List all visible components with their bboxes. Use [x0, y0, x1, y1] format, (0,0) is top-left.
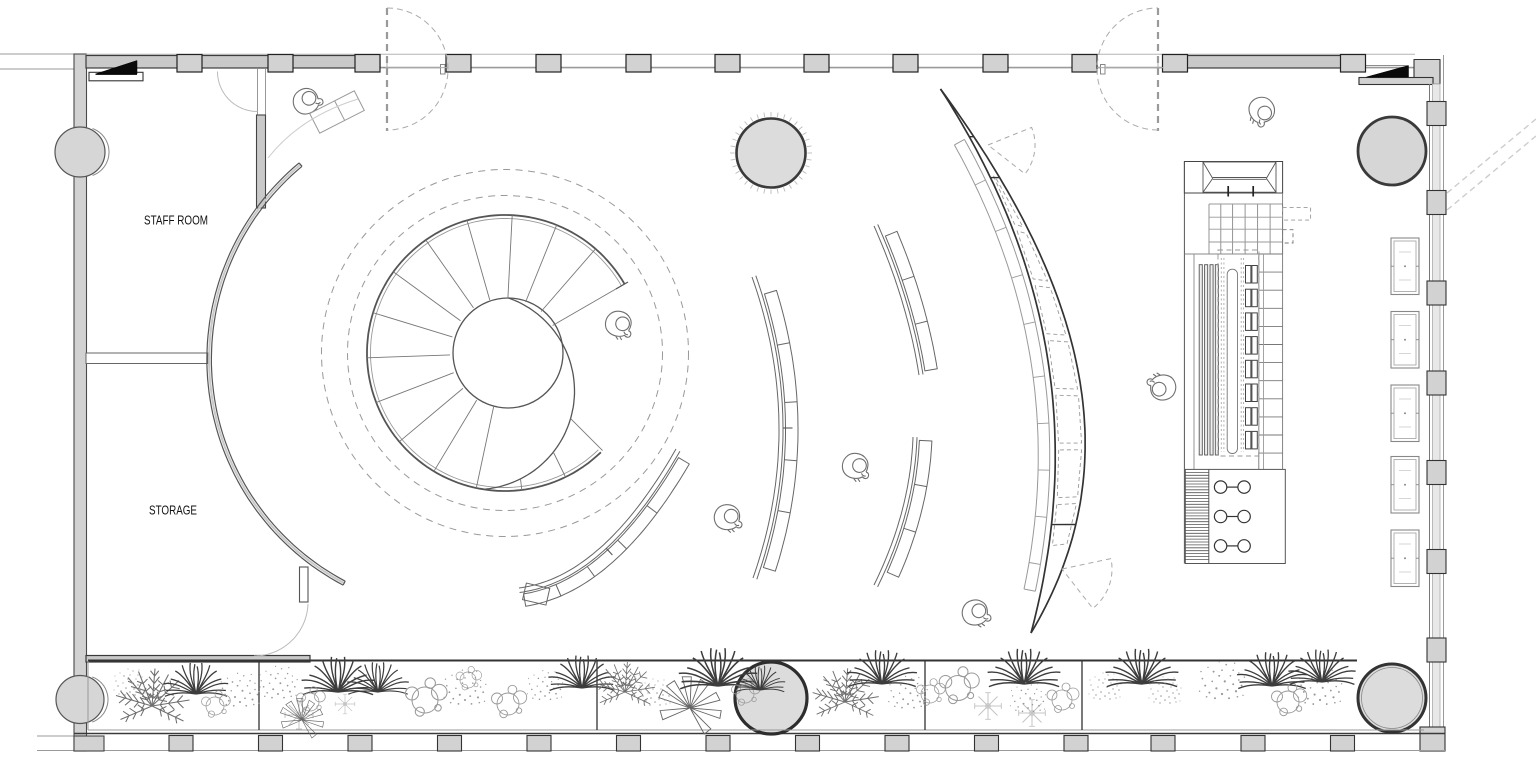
svg-text:STAFF ROOM: STAFF ROOM — [144, 213, 208, 228]
svg-text:STORAGE: STORAGE — [149, 503, 197, 518]
